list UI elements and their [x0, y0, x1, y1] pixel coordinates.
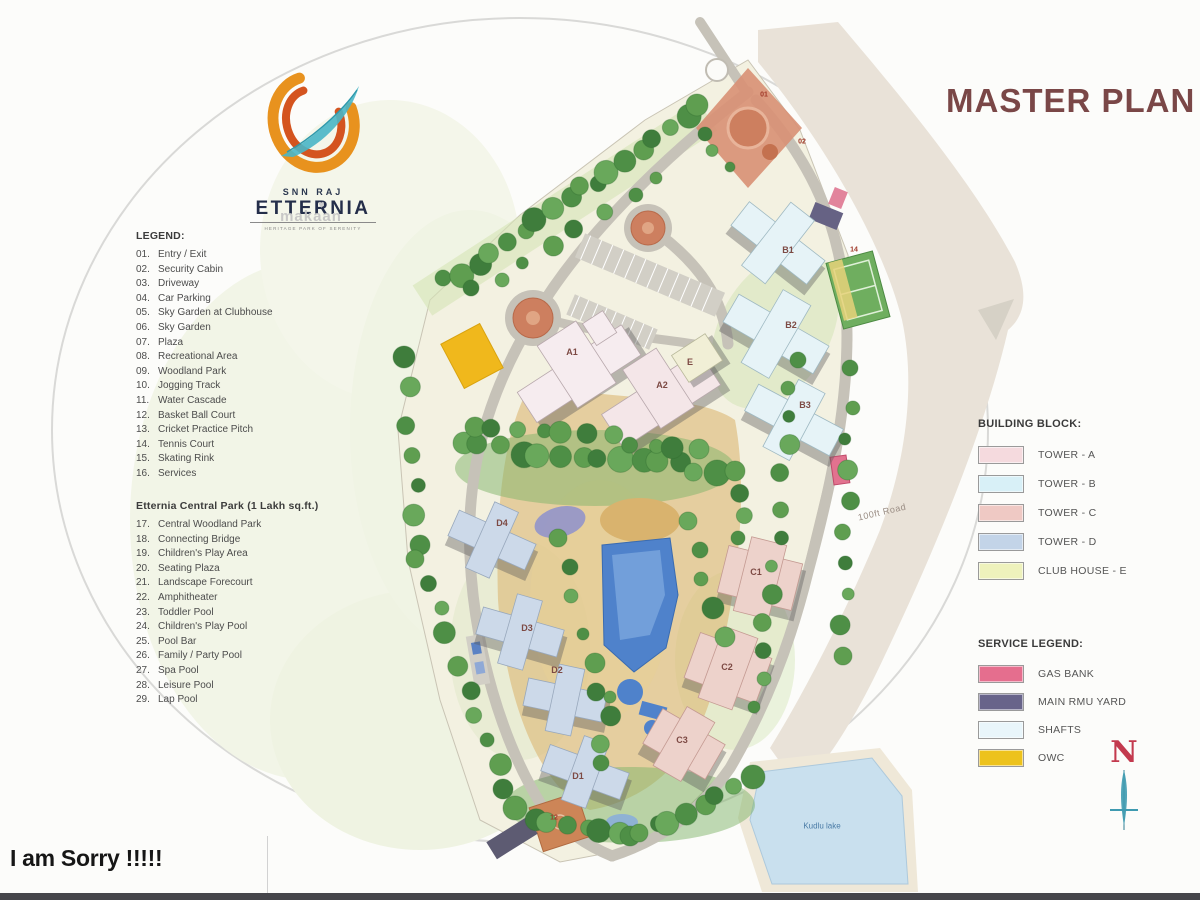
legend-item-label: Toddler Pool — [158, 606, 396, 621]
legend-item: 16.Services — [136, 467, 386, 482]
tree-icon — [493, 779, 513, 799]
tree-icon — [643, 130, 661, 148]
tower-label-e: E — [687, 357, 693, 367]
legend-item: 15.Skating Rink — [136, 452, 386, 467]
tree-icon — [689, 439, 709, 459]
legend-item-number: 27. — [136, 664, 158, 679]
legend-panel: LEGEND: 01.Entry / Exit02.Security Cabin… — [136, 230, 386, 482]
tree-icon — [549, 446, 571, 468]
legend-item-label: Children's Play Pool — [158, 620, 396, 635]
legend-item-label: Central Woodland Park — [158, 518, 396, 533]
swatch-label: TOWER - D — [1038, 536, 1097, 548]
swatch-label: OWC — [1038, 752, 1065, 764]
legend-item: 06.Sky Garden — [136, 321, 386, 336]
tree-icon — [433, 622, 455, 644]
legend-item: 11.Water Cascade — [136, 394, 386, 409]
tree-icon — [525, 444, 549, 468]
tree-icon — [543, 236, 563, 256]
tree-icon — [462, 682, 480, 700]
legend-item-label: Entry / Exit — [158, 248, 386, 263]
tree-icon — [830, 615, 850, 635]
tree-icon — [565, 220, 583, 238]
tree-icon — [783, 410, 795, 422]
legend-item-label: Security Cabin — [158, 263, 386, 278]
tree-icon — [781, 381, 795, 395]
legend-item: 18.Connecting Bridge — [136, 533, 396, 548]
tree-icon — [585, 653, 605, 673]
page-title: MASTER PLAN — [946, 82, 1195, 120]
marker-12: 12 — [550, 815, 558, 822]
legend-item-number: 16. — [136, 467, 158, 482]
tree-icon — [404, 448, 420, 464]
tree-icon — [675, 803, 697, 825]
swatch-label: MAIN RMU YARD — [1038, 696, 1126, 708]
legend-item: 05.Sky Garden at Clubhouse — [136, 306, 386, 321]
tower-label-c3: C3 — [676, 735, 688, 745]
tree-icon — [705, 787, 723, 805]
tree-icon — [692, 542, 708, 558]
legend-item-number: 03. — [136, 277, 158, 292]
tree-icon — [448, 656, 468, 676]
swatch-label: SHAFTS — [1038, 724, 1081, 736]
legend-item-number: 25. — [136, 635, 158, 650]
legend-item-number: 18. — [136, 533, 158, 548]
color-swatch — [978, 693, 1024, 711]
tree-icon — [411, 478, 425, 492]
legend-item-label: Skating Rink — [158, 452, 386, 467]
tree-icon — [577, 424, 597, 444]
marker-02: 02 — [798, 139, 806, 146]
legend-item-label: Connecting Bridge — [158, 533, 396, 548]
tree-icon — [622, 437, 638, 453]
legend-item-label: Children's Play Area — [158, 547, 396, 562]
building-block-heading: BUILDING BLOCK: — [978, 418, 1168, 430]
tree-icon — [706, 145, 718, 157]
tree-icon — [587, 683, 605, 701]
tree-icon — [480, 733, 494, 747]
legend-item: 19.Children's Play Area — [136, 547, 396, 562]
legend-item-number: 11. — [136, 394, 158, 409]
tree-icon — [562, 559, 578, 575]
tree-icon — [780, 435, 800, 455]
page: A1 A2 E B1 B2 B3 C1 C2 C3 D4 D3 D2 D1 01… — [0, 0, 1200, 900]
tower-label-a1: A1 — [566, 347, 578, 357]
tower-label-d4: D4 — [496, 518, 508, 528]
tree-icon — [601, 706, 621, 726]
legend-item-number: 19. — [136, 547, 158, 562]
legend-item-label: Recreational Area — [158, 350, 386, 365]
tree-icon — [397, 417, 415, 435]
tree-icon — [755, 643, 771, 659]
bottom-bar — [0, 893, 1200, 900]
tree-icon — [605, 426, 623, 444]
logo-swirl-icon — [253, 62, 373, 180]
legend-swatch-row: TOWER - B — [978, 469, 1168, 498]
tree-icon — [715, 627, 735, 647]
tree-icon — [842, 492, 860, 510]
tree-icon — [510, 422, 526, 438]
tree-icon — [466, 707, 482, 723]
tree-icon — [614, 150, 636, 172]
swatch-label: TOWER - B — [1038, 478, 1096, 490]
legend-item: 24.Children's Play Pool — [136, 620, 396, 635]
legend-item: 27.Spa Pool — [136, 664, 396, 679]
marker-01: 01 — [760, 92, 768, 99]
color-swatch — [978, 749, 1024, 767]
marker-14: 14 — [850, 247, 858, 254]
tree-icon — [662, 119, 678, 135]
tree-icon — [731, 484, 749, 502]
color-swatch — [978, 665, 1024, 683]
color-swatch — [978, 533, 1024, 551]
compass-needle-icon — [1102, 768, 1146, 832]
tree-icon — [839, 433, 851, 445]
legend-item: 14.Tennis Court — [136, 438, 386, 453]
legend-item: 03.Driveway — [136, 277, 386, 292]
tree-icon — [842, 588, 854, 600]
legend-item-number: 02. — [136, 263, 158, 278]
tree-icon — [757, 672, 771, 686]
tower-label-b1: B1 — [782, 245, 794, 255]
legend-item-number: 21. — [136, 576, 158, 591]
watermark: makaan ♥ — [256, 208, 366, 225]
tree-icon — [435, 270, 451, 286]
tree-icon — [702, 597, 724, 619]
legend-item-number: 04. — [136, 292, 158, 307]
tree-icon — [495, 273, 509, 287]
legend-item-number: 17. — [136, 518, 158, 533]
legend-item-label: Lap Pool — [158, 693, 396, 708]
tree-icon — [736, 508, 752, 524]
legend-item: 04.Car Parking — [136, 292, 386, 307]
watermark-text: makaan — [280, 208, 342, 225]
tree-icon — [842, 360, 858, 376]
tower-label-b3: B3 — [799, 400, 811, 410]
legend-list: 01.Entry / Exit02.Security Cabin03.Drive… — [136, 248, 386, 482]
legend-swatch-row: TOWER - A — [978, 440, 1168, 469]
legend-item-label: Landscape Forecourt — [158, 576, 396, 591]
tree-icon — [549, 421, 571, 443]
legend-item: 12.Basket Ball Court — [136, 409, 386, 424]
tree-icon — [570, 177, 588, 195]
legend-heading: LEGEND: — [136, 230, 386, 242]
tree-icon — [463, 280, 479, 296]
tree-icon — [435, 601, 449, 615]
park-legend-panel: Etternia Central Park (1 Lakh sq.ft.) 17… — [136, 500, 396, 708]
tree-icon — [498, 233, 516, 251]
tree-icon — [686, 94, 708, 116]
tree-icon — [790, 352, 806, 368]
tower-label-a2: A2 — [656, 380, 668, 390]
tree-icon — [698, 127, 712, 141]
legend-item-number: 29. — [136, 693, 158, 708]
legend-item: 07.Plaza — [136, 336, 386, 351]
tree-icon — [846, 401, 860, 415]
legend-item: 25.Pool Bar — [136, 635, 396, 650]
legend-swatch-row: GAS BANK — [978, 660, 1168, 688]
legend-item: 02.Security Cabin — [136, 263, 386, 278]
north-compass: N — [1102, 738, 1146, 837]
legend-item-label: Woodland Park — [158, 365, 386, 380]
tower-label-d3: D3 — [521, 623, 533, 633]
legend-swatch-row: TOWER - C — [978, 498, 1168, 527]
tree-icon — [630, 824, 648, 842]
legend-item-label: Jogging Track — [158, 379, 386, 394]
tree-icon — [478, 243, 498, 263]
tree-icon — [491, 436, 509, 454]
legend-swatch-row: CLUB HOUSE - E — [978, 556, 1168, 585]
legend-item-number: 13. — [136, 423, 158, 438]
tree-icon — [694, 572, 708, 586]
tree-icon — [762, 584, 782, 604]
legend-item: 29.Lap Pool — [136, 693, 396, 708]
tower-label-d1: D1 — [572, 771, 584, 781]
legend-item: 10.Jogging Track — [136, 379, 386, 394]
tree-icon — [773, 502, 789, 518]
tree-icon — [834, 524, 850, 540]
legend-item-number: 07. — [136, 336, 158, 351]
legend-item: 01.Entry / Exit — [136, 248, 386, 263]
tree-icon — [838, 556, 852, 570]
tree-icon — [726, 778, 742, 794]
tree-icon — [725, 162, 735, 172]
tree-icon — [748, 701, 760, 713]
color-swatch — [978, 504, 1024, 522]
building-block-legend: BUILDING BLOCK: TOWER - ATOWER - BTOWER … — [978, 418, 1168, 585]
legend-item: 08.Recreational Area — [136, 350, 386, 365]
tree-icon — [482, 419, 500, 437]
legend-item-number: 23. — [136, 606, 158, 621]
tree-icon — [661, 437, 683, 459]
legend-item-number: 08. — [136, 350, 158, 365]
brand-logo: SNN RAJ ETTERNIA HERITAGE PARK OF SERENI… — [248, 62, 378, 231]
color-swatch — [978, 446, 1024, 464]
tree-icon — [564, 589, 578, 603]
legend-item-label: Cricket Practice Pitch — [158, 423, 386, 438]
legend-item-label: Basket Ball Court — [158, 409, 386, 424]
tree-icon — [753, 614, 771, 632]
tree-icon — [587, 819, 611, 843]
fold-line — [267, 836, 268, 893]
north-label: N — [1102, 738, 1146, 768]
tree-icon — [490, 753, 512, 775]
tree-icon — [577, 628, 589, 640]
tree-icon — [549, 529, 567, 547]
legend-item-label: Plaza — [158, 336, 386, 351]
tree-icon — [771, 464, 789, 482]
tree-icon — [650, 172, 662, 184]
tree-icon — [597, 204, 613, 220]
tower-label-d2: D2 — [551, 665, 563, 675]
tower-label-c1: C1 — [750, 567, 762, 577]
color-swatch — [978, 721, 1024, 739]
tree-icon — [775, 531, 789, 545]
legend-swatch-row: MAIN RMU YARD — [978, 688, 1168, 716]
legend-item-label: Spa Pool — [158, 664, 396, 679]
legend-item-number: 26. — [136, 649, 158, 664]
tree-icon — [679, 512, 697, 530]
legend-item: 13.Cricket Practice Pitch — [136, 423, 386, 438]
legend-item-label: Water Cascade — [158, 394, 386, 409]
legend-item-number: 20. — [136, 562, 158, 577]
park-legend-list: 17.Central Woodland Park18.Connecting Br… — [136, 518, 396, 708]
tree-icon — [834, 647, 852, 665]
tree-icon — [588, 449, 606, 467]
legend-item-number: 09. — [136, 365, 158, 380]
tree-icon — [741, 765, 765, 789]
legend-item-number: 06. — [136, 321, 158, 336]
tree-icon — [593, 755, 609, 771]
tree-icon — [516, 257, 528, 269]
legend-item-label: Sky Garden — [158, 321, 386, 336]
tree-icon — [400, 377, 420, 397]
legend-item: 22.Amphitheater — [136, 591, 396, 606]
legend-item-number: 10. — [136, 379, 158, 394]
legend-item-label: Services — [158, 467, 386, 482]
legend-item-label: Pool Bar — [158, 635, 396, 650]
legend-item: 17.Central Woodland Park — [136, 518, 396, 533]
legend-swatch-row: TOWER - D — [978, 527, 1168, 556]
legend-item: 21.Landscape Forecourt — [136, 576, 396, 591]
legend-item-number: 05. — [136, 306, 158, 321]
legend-item-label: Leisure Pool — [158, 679, 396, 694]
tree-icon — [731, 531, 745, 545]
legend-item-label: Seating Plaza — [158, 562, 396, 577]
legend-item-number: 24. — [136, 620, 158, 635]
legend-item-label: Driveway — [158, 277, 386, 292]
tree-icon — [503, 796, 527, 820]
legend-item-label: Tennis Court — [158, 438, 386, 453]
legend-item-number: 22. — [136, 591, 158, 606]
color-swatch — [978, 475, 1024, 493]
color-swatch — [978, 562, 1024, 580]
legend-item-number: 28. — [136, 679, 158, 694]
lake-label: Kudlu lake — [803, 822, 840, 831]
legend-item-number: 12. — [136, 409, 158, 424]
tree-icon — [684, 463, 702, 481]
swatch-label: CLUB HOUSE - E — [1038, 565, 1127, 577]
tree-icon — [393, 346, 415, 368]
legend-item-number: 14. — [136, 438, 158, 453]
legend-item-label: Sky Garden at Clubhouse — [158, 306, 386, 321]
heart-icon: ♥ — [318, 199, 326, 211]
tower-label-b2: B2 — [785, 320, 797, 330]
tree-icon — [403, 504, 425, 526]
legend-item-label: Amphitheater — [158, 591, 396, 606]
tree-icon — [542, 197, 564, 219]
legend-item-number: 15. — [136, 452, 158, 467]
swatch-label: TOWER - A — [1038, 449, 1095, 461]
legend-item: 20.Seating Plaza — [136, 562, 396, 577]
tree-icon — [591, 735, 609, 753]
legend-item: 28.Leisure Pool — [136, 679, 396, 694]
park-legend-heading: Etternia Central Park (1 Lakh sq.ft.) — [136, 500, 396, 512]
tree-icon — [420, 576, 436, 592]
legend-item-number: 01. — [136, 248, 158, 263]
brand-name-top: SNN RAJ — [248, 187, 378, 197]
tree-icon — [558, 816, 576, 834]
legend-item: 26.Family / Party Pool — [136, 649, 396, 664]
swatch-label: GAS BANK — [1038, 668, 1094, 680]
tree-icon — [604, 691, 616, 703]
building-block-list: TOWER - ATOWER - BTOWER - CTOWER - DCLUB… — [978, 440, 1168, 585]
tree-icon — [629, 188, 643, 202]
legend-item-label: Family / Party Pool — [158, 649, 396, 664]
legend-item: 09.Woodland Park — [136, 365, 386, 380]
swatch-label: TOWER - C — [1038, 507, 1097, 519]
apology-text: I am Sorry !!!!! — [10, 845, 162, 872]
tree-icon — [838, 460, 858, 480]
legend-item: 23.Toddler Pool — [136, 606, 396, 621]
legend-item-label: Car Parking — [158, 292, 386, 307]
tree-icon — [406, 550, 424, 568]
tree-icon — [725, 461, 745, 481]
service-legend-heading: SERVICE LEGEND: — [978, 638, 1168, 650]
tower-label-c2: C2 — [721, 662, 733, 672]
tree-icon — [765, 560, 777, 572]
